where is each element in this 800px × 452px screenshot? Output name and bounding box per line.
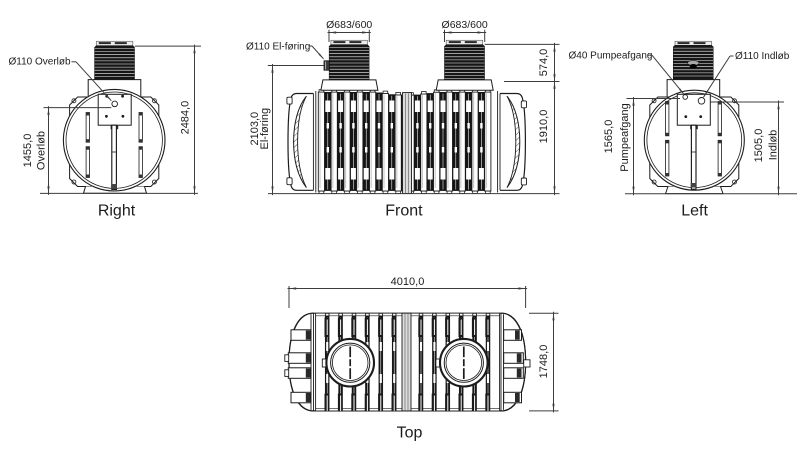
svg-text:Pumpeafgang: Pumpeafgang	[619, 103, 631, 172]
svg-text:1910,0: 1910,0	[538, 110, 550, 144]
svg-text:Right: Right	[98, 203, 136, 220]
svg-text:574,0: 574,0	[538, 49, 550, 77]
svg-text:1565,0: 1565,0	[603, 120, 615, 154]
svg-text:Front: Front	[385, 203, 423, 220]
svg-text:Ø110 El-føring: Ø110 El-føring	[246, 41, 310, 52]
svg-text:Indløb: Indløb	[767, 130, 779, 161]
svg-text:Ø683/600: Ø683/600	[326, 19, 372, 31]
svg-text:Ø110 Overløb: Ø110 Overløb	[9, 57, 71, 68]
svg-text:4010,0: 4010,0	[391, 276, 425, 288]
svg-text:Top: Top	[397, 425, 423, 442]
svg-text:1748,0: 1748,0	[538, 345, 550, 379]
svg-text:Ø110 Indløb: Ø110 Indløb	[735, 51, 790, 62]
svg-text:1455,0: 1455,0	[22, 134, 34, 168]
svg-text:Overløb: Overløb	[36, 131, 48, 170]
svg-text:Ø683/600: Ø683/600	[442, 19, 488, 31]
svg-text:Left: Left	[681, 203, 708, 220]
svg-text:1505,0: 1505,0	[753, 129, 765, 163]
svg-text:El-føring: El-føring	[259, 108, 271, 150]
svg-text:2484,0: 2484,0	[180, 101, 192, 135]
svg-text:Ø40 Pumpeafgang: Ø40 Pumpeafgang	[569, 51, 653, 62]
